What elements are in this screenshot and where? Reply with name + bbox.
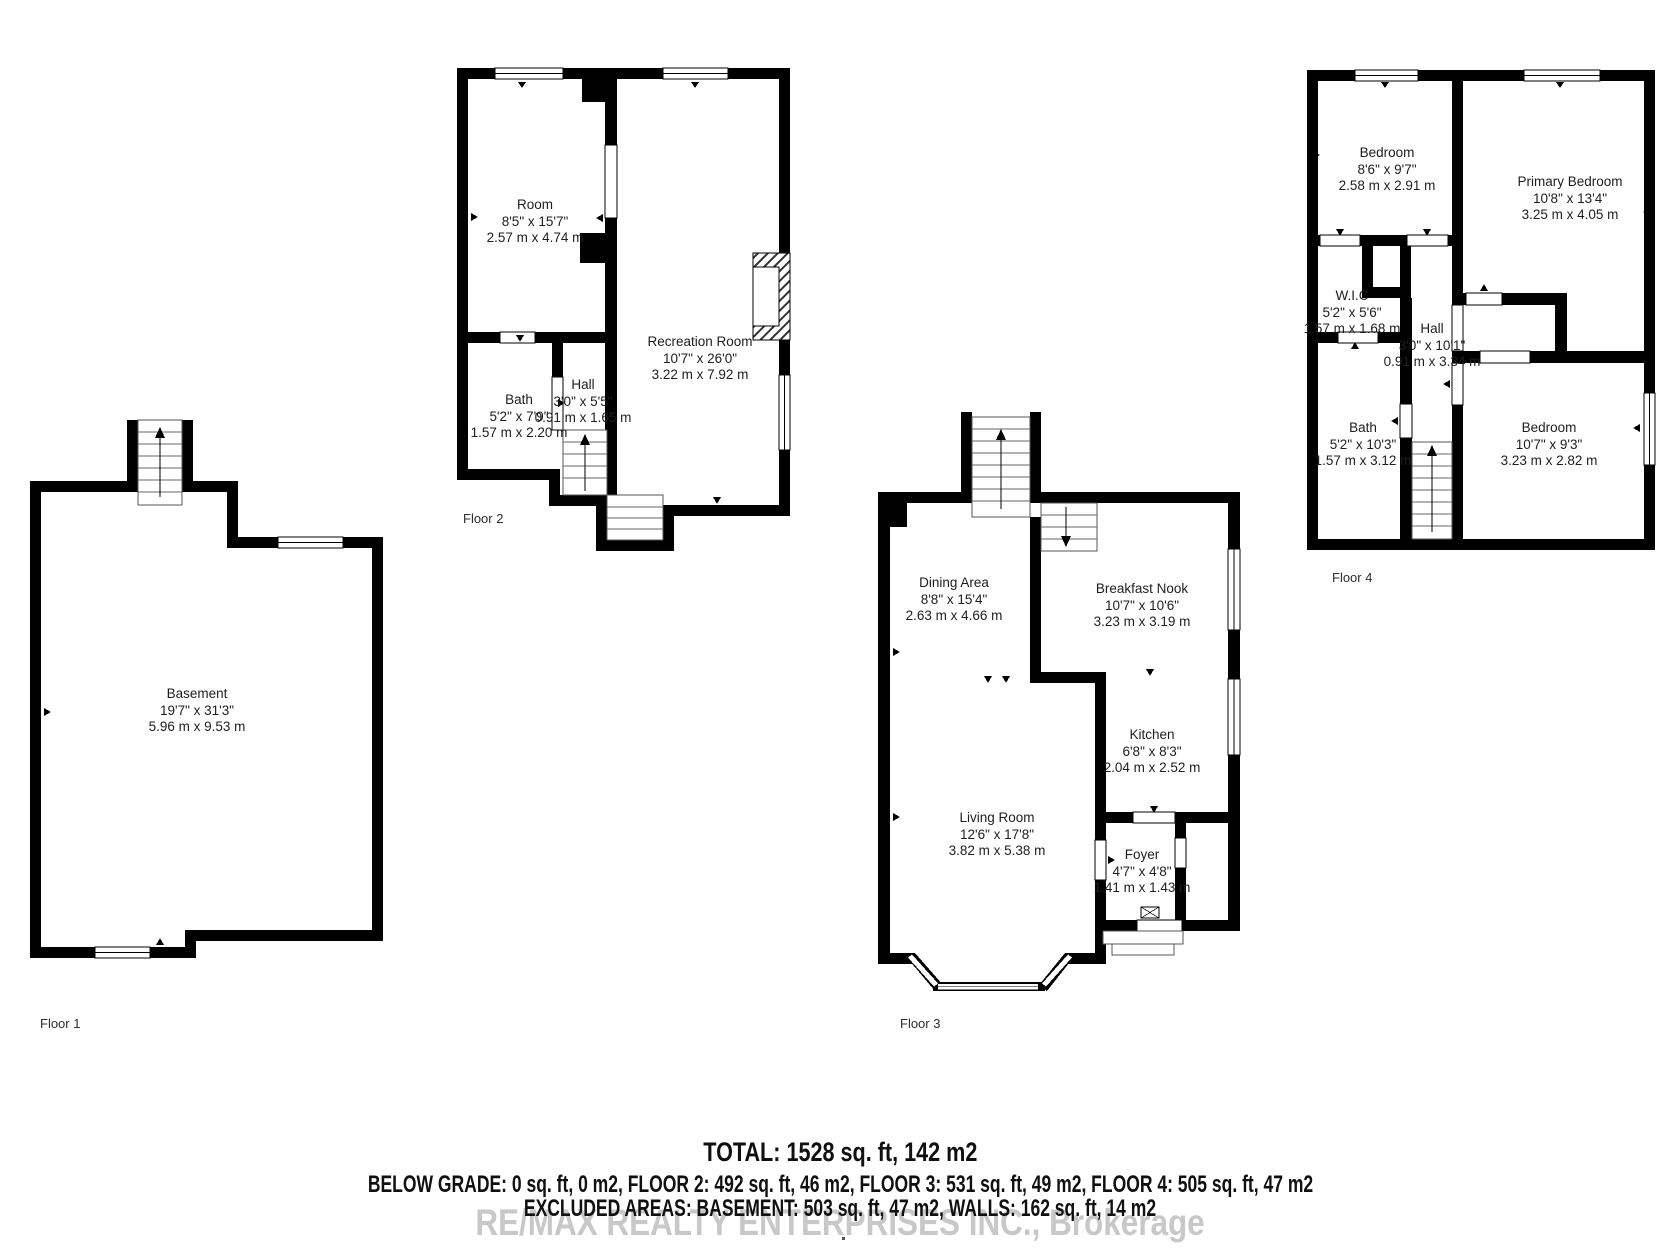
room-dim-metric: 3.23 m x 2.82 m (1501, 453, 1598, 470)
window-tick-icon (1633, 424, 1640, 432)
passage-tick-icon (1002, 676, 1010, 683)
room-label-hall-f4: Hall 3'0" x 10'1" 0.91 m x 3.34 m (1384, 321, 1481, 371)
stray-dot (842, 1237, 845, 1240)
door-arrow-icon (893, 813, 900, 821)
door-opening (605, 145, 617, 218)
door-arrow-icon (156, 938, 164, 945)
room-dim-imperial: 10'7" x 10'6" (1094, 598, 1191, 615)
room-label-bath-f4: Bath 5'2" x 10'3" 1.57 m x 3.12 m (1315, 420, 1412, 470)
room-dim-imperial: 10'7" x 9'3" (1501, 437, 1598, 454)
floor4-tag: Floor 4 (1332, 570, 1372, 585)
room-name: Kitchen (1104, 727, 1201, 744)
room-label-kitchen: Kitchen 6'8" x 8'3" 2.04 m x 2.52 m (1104, 727, 1201, 777)
door-opening (1407, 235, 1448, 246)
excluded-areas-text: EXCLUDED AREAS: BASEMENT: 503 sq. ft, 47… (524, 1195, 1156, 1223)
room-dim-metric: 2.04 m x 2.52 m (1104, 760, 1201, 777)
room-dim-imperial: 4'7" x 4'8" (1094, 864, 1191, 881)
room-label-recreation: Recreation Room 10'7" x 26'0" 3.22 m x 7… (647, 334, 752, 384)
door-arrow-icon (1443, 380, 1450, 388)
room-label-hall-f2: Hall 3'0" x 5'5" 0.91 m x 1.65 m (535, 377, 632, 427)
window-tick-icon (1381, 82, 1389, 88)
total-area-text: TOTAL: 1528 sq. ft, 142 m2 (703, 1137, 977, 1168)
room-label-bedroom-1: Bedroom 8'6" x 9'7" 2.58 m x 2.91 m (1339, 145, 1436, 195)
door-opening (1466, 293, 1502, 305)
closet-door (1480, 351, 1530, 363)
room-name: Hall (535, 377, 632, 394)
room-dim-imperial: 6'8" x 8'3" (1104, 744, 1201, 761)
room-dim-imperial: 8'8" x 15'4" (906, 592, 1003, 609)
room-dim-metric: 2.57 m x 4.74 m (487, 230, 584, 247)
excluded-areas-line: EXCLUDED AREAS: BASEMENT: 503 sq. ft, 47… (0, 1195, 1680, 1223)
room-dim-imperial: 12'6" x 17'8" (949, 827, 1046, 844)
window (1228, 679, 1240, 755)
staircase (563, 430, 607, 495)
staircase (138, 420, 182, 505)
room-dim-imperial: 19'7" x 31'3" (149, 703, 246, 720)
room-name: Bedroom (1501, 420, 1598, 437)
room-label-dining: Dining Area 8'8" x 15'4" 2.63 m x 4.66 m (906, 575, 1003, 625)
room-dim-imperial: 3'0" x 10'1" (1384, 338, 1481, 355)
room-name: Recreation Room (647, 334, 752, 351)
room-name: Hall (1384, 321, 1481, 338)
room-name: Dining Area (906, 575, 1003, 592)
window-tick-icon (518, 82, 526, 88)
room-dim-metric: 5.96 m x 9.53 m (149, 719, 246, 736)
window-tick-icon (1556, 82, 1564, 88)
floor1-tag: Floor 1 (40, 1016, 80, 1031)
window (1228, 549, 1240, 630)
fireplace (753, 253, 790, 340)
room-name: Breakfast Nook (1094, 581, 1191, 598)
staircase (607, 495, 663, 540)
door-arrow-icon (893, 648, 900, 656)
room-name: Bath (1315, 420, 1412, 437)
entry-steps (1103, 931, 1183, 955)
room-dim-imperial: 10'7" x 26'0" (647, 351, 752, 368)
room-dim-metric: 1.41 m x 1.43 m (1094, 880, 1191, 897)
room-dim-metric: 3.22 m x 7.92 m (647, 367, 752, 384)
staircase (1412, 442, 1452, 539)
floor3-plan (878, 412, 1240, 991)
window-tick-icon (691, 82, 699, 88)
room-label-living: Living Room 12'6" x 17'8" 3.82 m x 5.38 … (949, 810, 1046, 860)
window (278, 537, 343, 548)
door-arrow-icon (471, 213, 478, 221)
window (1355, 70, 1418, 81)
room-dim-metric: 2.63 m x 4.66 m (906, 608, 1003, 625)
window (779, 375, 790, 450)
room-dim-imperial: 5'2" x 5'6" (1304, 305, 1401, 322)
door-arrow-icon (44, 708, 51, 716)
passage-tick-icon (1146, 669, 1154, 676)
door-opening (1133, 812, 1175, 823)
room-dim-imperial: 5'2" x 10'3" (1315, 437, 1412, 454)
room-name: Room (487, 197, 584, 214)
room-label-bedroom-2: Bedroom 10'7" x 9'3" 3.23 m x 2.82 m (1501, 420, 1598, 470)
room-label-primary-bedroom: Primary Bedroom 10'8" x 13'4" 3.25 m x 4… (1517, 174, 1622, 224)
window (495, 68, 563, 79)
room-label-basement: Basement 19'7" x 31'3" 5.96 m x 9.53 m (149, 686, 246, 736)
room-dim-imperial: 8'5" x 15'7" (487, 214, 584, 231)
door-opening (1320, 235, 1360, 246)
door-arrow-icon (1480, 284, 1488, 291)
room-dim-metric: 3.82 m x 5.38 m (949, 843, 1046, 860)
room-name: Bedroom (1339, 145, 1436, 162)
room-dim-metric: 3.25 m x 4.05 m (1517, 207, 1622, 224)
window (1524, 70, 1600, 81)
total-area-line: TOTAL: 1528 sq. ft, 142 m2 (0, 1137, 1680, 1168)
room-dim-imperial: 10'8" x 13'4" (1517, 191, 1622, 208)
room-dim-metric: 2.58 m x 2.91 m (1339, 178, 1436, 195)
room-name: Living Room (949, 810, 1046, 827)
room-label-foyer: Foyer 4'7" x 4'8" 1.41 m x 1.43 m (1094, 847, 1191, 897)
floor2-tag: Floor 2 (463, 511, 503, 526)
staircase (1041, 503, 1097, 551)
door-arrow-icon (596, 214, 603, 222)
room-dim-metric: 0.91 m x 1.65 m (535, 410, 632, 427)
room-dim-metric: 0.91 m x 3.34 m (1384, 354, 1481, 371)
room-dim-metric: 1.57 m x 2.20 m (471, 425, 568, 442)
room-label-room: Room 8'5" x 15'7" 2.57 m x 4.74 m (487, 197, 584, 247)
floor3-tag: Floor 3 (900, 1016, 940, 1031)
room-dim-metric: 3.23 m x 3.19 m (1094, 614, 1191, 631)
bay-window (903, 953, 1077, 991)
window (1644, 393, 1655, 465)
floor2-plan (457, 68, 790, 551)
passage-tick-icon (984, 676, 992, 683)
room-name: Foyer (1094, 847, 1191, 864)
room-name: Basement (149, 686, 246, 703)
staircase (972, 417, 1030, 517)
room-name: W.I.C (1304, 288, 1401, 305)
room-dim-imperial: 8'6" x 9'7" (1339, 162, 1436, 179)
room-dim-metric: 1.57 m x 3.12 m (1315, 453, 1412, 470)
room-name: Primary Bedroom (1517, 174, 1622, 191)
window (663, 68, 728, 79)
room-label-breakfast: Breakfast Nook 10'7" x 10'6" 3.23 m x 3.… (1094, 581, 1191, 631)
room-dim-imperial: 3'0" x 5'5" (535, 394, 632, 411)
door-arrow-icon (713, 497, 721, 504)
floorplan-page: Basement 19'7" x 31'3" 5.96 m x 9.53 m R… (0, 0, 1680, 1260)
window (95, 947, 150, 958)
